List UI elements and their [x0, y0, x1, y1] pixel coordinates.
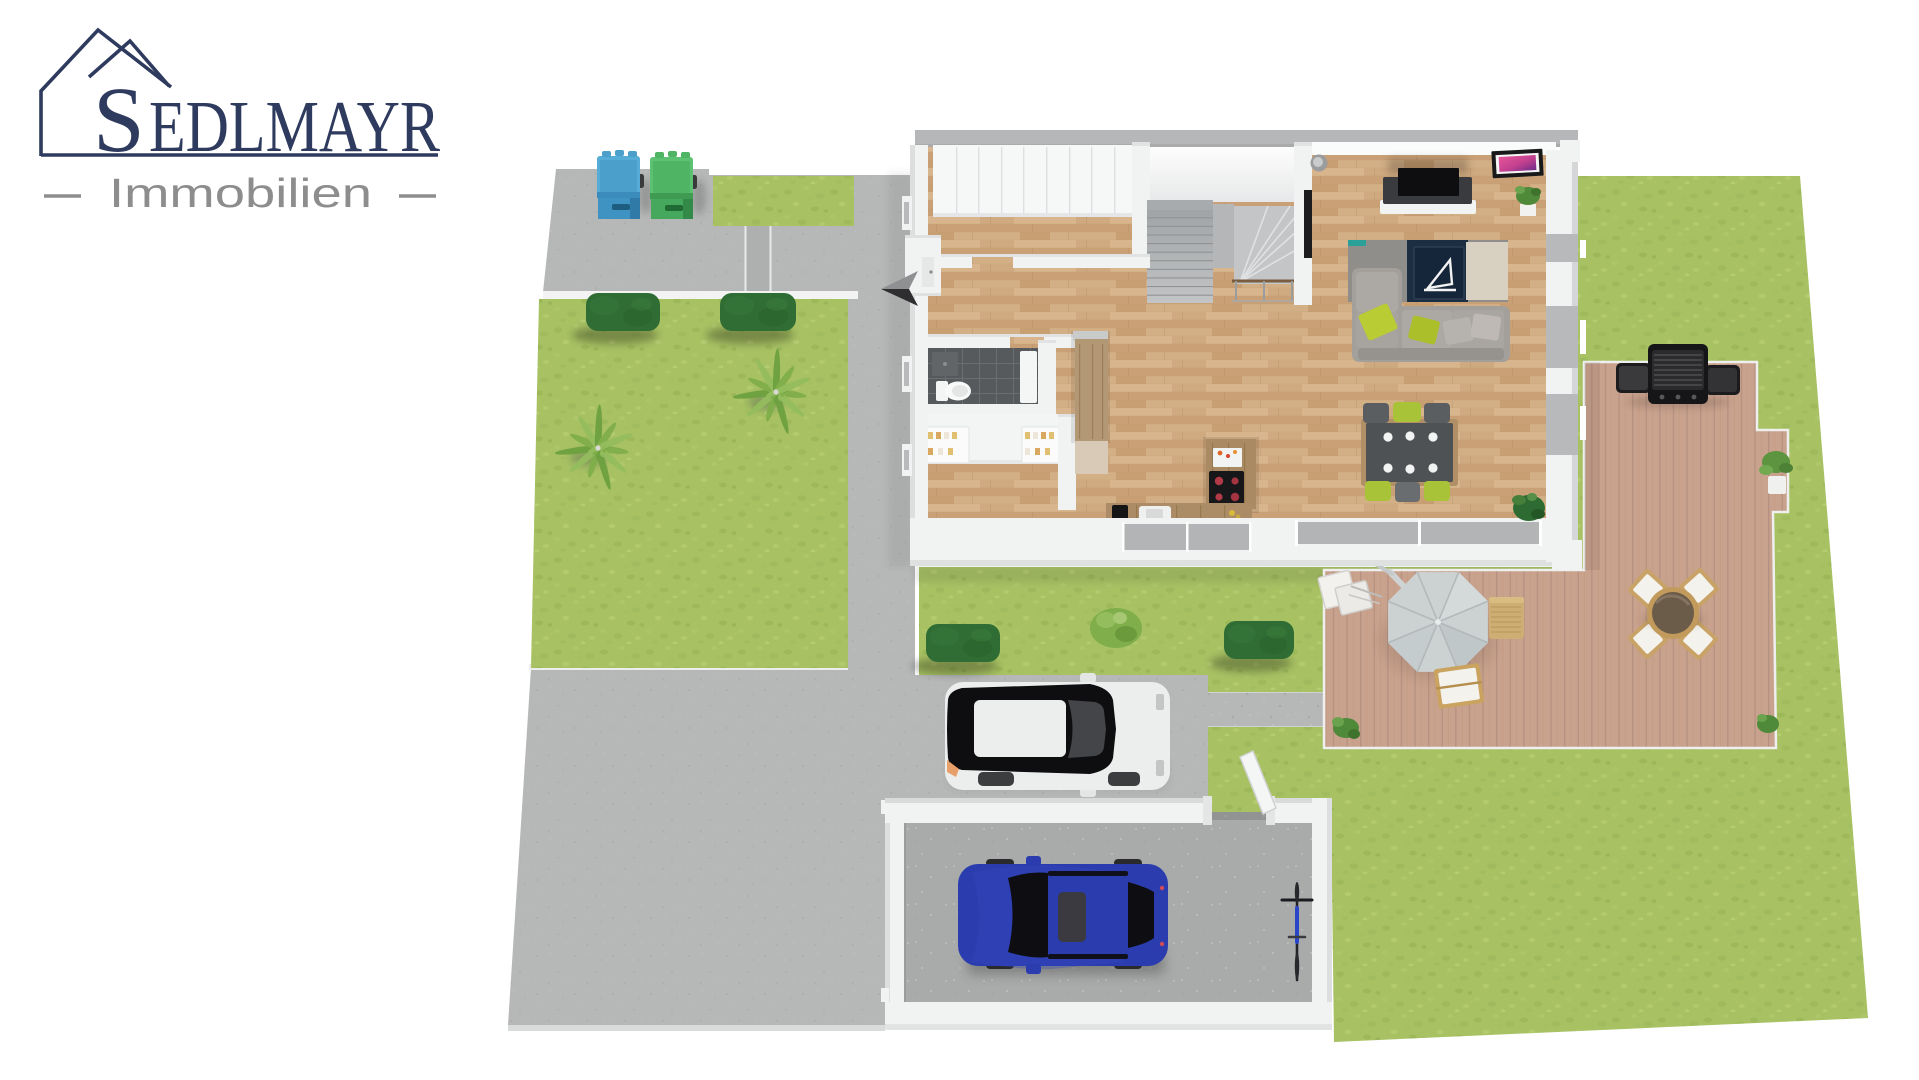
svg-text:EDLMAYR: EDLMAYR [149, 86, 440, 167]
svg-text:S: S [93, 69, 145, 172]
svg-text:Immobilien: Immobilien [109, 170, 372, 216]
